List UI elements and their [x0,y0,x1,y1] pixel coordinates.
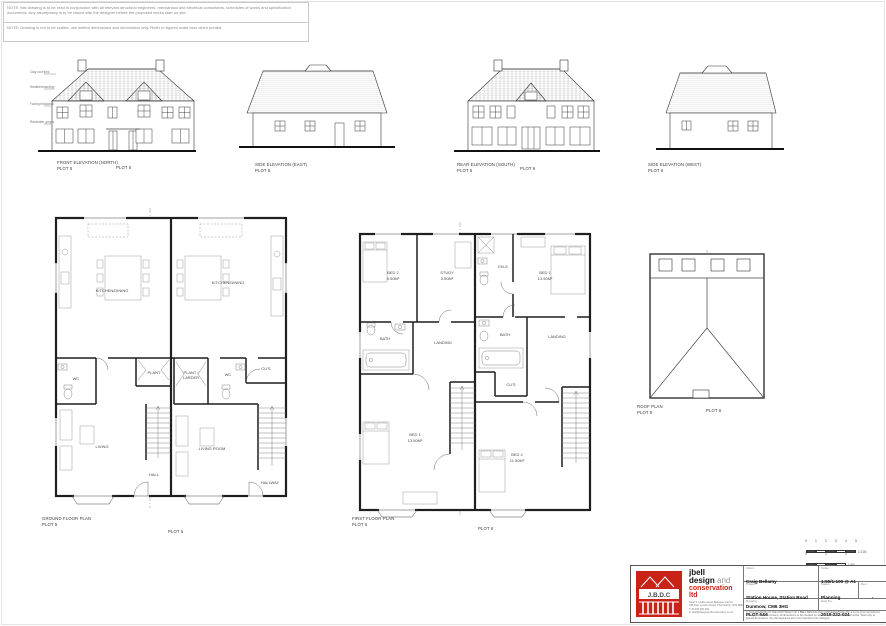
room-label: BED 1 [409,432,421,437]
logo-acronym: J.B.D.C [648,592,671,599]
room-label: KITCHEN/DINING [96,288,129,293]
room-label: BED 2 [511,452,523,457]
room-label: PLANT [148,370,161,375]
room-label: 13.50M² [538,276,553,281]
scale-bar-1100: 0 1 2 3 4 5 1:100 [798,543,884,554]
scale-cell: Scale: 1:50/1:100 @ A1 [818,566,886,582]
plan-caption: GROUND FLOOR PLAN PLOT 5 [42,516,91,529]
drawing-sheet: NOTE: this drawing is to be read in conj… [0,0,886,626]
scale-tick: 3 [835,539,837,543]
plot-label: PLOT 5 [255,168,307,174]
scale-tick: 1 [825,552,827,556]
plot-label: PLOT 6 [648,168,701,174]
room-label: CU'S [261,366,271,371]
scale-tick: 0 [805,552,807,556]
room-label: 11.50M² [510,458,525,463]
room-label: WC [225,372,232,377]
room-label: EN-S [498,264,508,269]
plot-label: PLOT 6 [706,408,721,414]
room-label: LIVING [95,444,108,449]
annotation-label: Clay roof tiles [30,70,50,74]
room-label: BED 2 [387,270,399,275]
plot-label: PLOT 6 [116,165,131,171]
plot-label: PLOT 6 [520,166,535,172]
revision-cell: Rev: - [858,582,886,599]
field-label: Client: [746,567,816,570]
scale-tick: 0 [805,539,807,543]
room-label: STUDY [440,270,454,275]
rear-elevation-drawing [450,55,610,158]
room-label: KITCHEN/DINING [212,280,245,285]
plan-caption: ROOF PLAN PLOT 5 [637,404,663,417]
ground-floor-plan-drawing: KITCHEN/DINING WC PLANT LIVING HALL KITC… [50,208,295,508]
elevation-caption: SIDE ELEVATION (EAST) PLOT 5 [255,162,307,175]
plan-caption: FIRST FLOOR PLAN PLOT 5 [352,516,394,529]
side-west-elevation-drawing [650,57,790,157]
field-label: Project: [746,583,816,586]
company-name: conservation ltd [689,585,743,600]
annotation-label: Weatherboarding [30,85,55,89]
room-label: HALL [149,472,160,477]
field-label: Rev: [861,583,884,586]
plot-label: PLOT 6 [478,526,493,532]
company-logo-icon: J.B.D.C [636,571,682,617]
annotation-label: Facing brickwork [30,102,54,106]
field-label: Drawing: [746,600,816,603]
scale-tick: 2 [845,552,847,556]
front-elevation-drawing: Clay roof tiles Weatherboarding Facing b… [30,55,200,158]
plot-label: PLOT 5 [637,410,663,416]
plot-label: PLOT 5 [57,166,118,172]
plot-label: PLOT 5 [352,522,394,528]
client-cell: Client: Craig Bellamy [743,566,818,582]
room-label: CU'S [506,382,516,387]
company-email: E: jbell@designandconservation.co.uk [689,611,743,614]
room-label: BED 1 [539,270,551,275]
room-label: BATH [500,332,510,337]
scale-tick: 1 [815,539,817,543]
room-label: WC [73,376,80,381]
company-name: design [689,576,715,585]
room-label: 5.50M² [441,276,454,281]
field-label: Dwg No: [821,600,884,603]
field-label: Status: [821,583,856,586]
plot-label: PLOT 5 [457,168,515,174]
room-label: BATH [380,336,390,341]
scale-ratio: 1:100 [858,550,867,554]
first-floor-plan-drawing: BED 2 9.50M² STUDY 5.50M² BATH LANDING B… [355,222,595,517]
elevation-caption: REAR ELEVATION (SOUTH) PLOT 5 [457,162,515,175]
title-block: J.B.D.C jbell design and conservation lt… [630,565,886,623]
side-east-elevation-drawing [235,55,400,158]
project-cell: Project: Station House, Station Road Dun… [743,582,818,599]
room-label: LANDING [434,340,452,345]
company-info: jbell design and conservation ltd Suite … [689,569,743,614]
note-box-2: NOTE: Drawing is not to be scaled; use w… [3,22,309,42]
room-label: LIVING ROOM [199,446,226,451]
scale-tick: 5 [855,539,857,543]
field-label: Scale: [821,567,884,570]
status-cell: Status: Planning [818,582,858,599]
plot-label: PLOT 5 [42,522,91,528]
company-name: and [715,576,731,585]
room-label: 13.50M² [408,438,423,443]
roof-plan-drawing [645,250,770,405]
scale-tick: 2 [825,539,827,543]
scale-tick: 4 [845,539,847,543]
dwgno-cell: Dwg No: 2019-222-024 [818,599,886,611]
room-label: LANDING [548,334,566,339]
room-label: 9.50M² [387,276,400,281]
elevation-caption: SIDE ELEVATION (WEST) PLOT 6 [648,162,701,175]
copyright-note: © THIS DRAWING IS THE COPYRIGHT OF J.BEL… [743,611,884,621]
room-label: LARDER [183,375,199,380]
annotation-label: Rainwater goods [30,120,54,124]
plot-label: PLOT 6 [168,529,183,535]
elevation-caption: FRONT ELEVATION (NORTH) PLOT 5 [57,160,118,173]
drawing-cell: Drawing: PLOT 5&6 [743,599,818,611]
room-label: HALLWAY [261,480,280,485]
